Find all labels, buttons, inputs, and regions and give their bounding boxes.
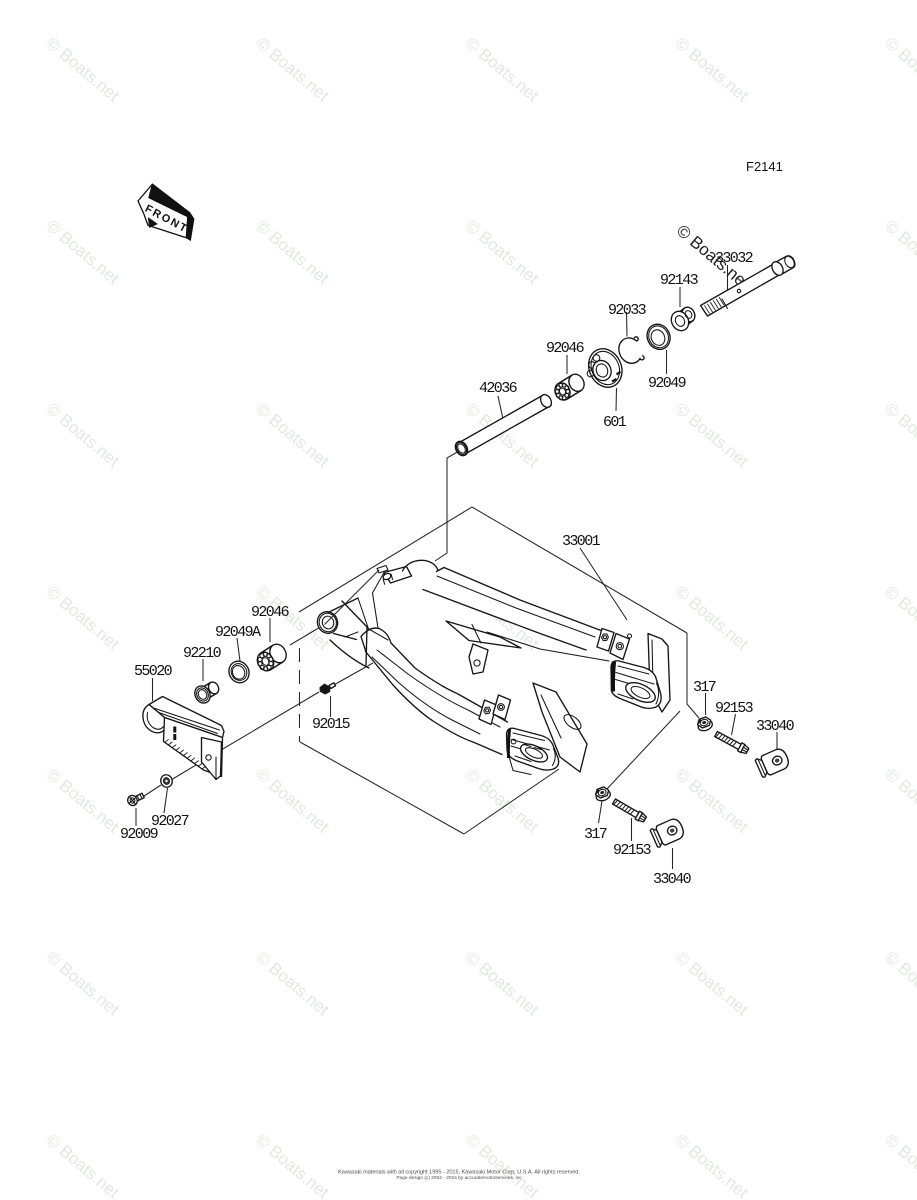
svg-text:92049A: 92049A xyxy=(215,624,261,641)
svg-text:92009: 92009 xyxy=(120,826,158,843)
svg-text:F2141: F2141 xyxy=(746,159,783,174)
svg-text:Kawasaki materials with all co: Kawasaki materials with all copyright 19… xyxy=(338,1170,580,1176)
svg-text:92049: 92049 xyxy=(648,375,686,392)
svg-text:55020: 55020 xyxy=(134,663,173,680)
svg-text:317: 317 xyxy=(693,679,716,696)
svg-text:92046: 92046 xyxy=(251,604,290,621)
svg-text:92153: 92153 xyxy=(715,700,754,717)
svg-text:317: 317 xyxy=(584,826,607,843)
svg-text:Page design (c) 2004 - 2015 by: Page design (c) 2004 - 2015 by accuratem… xyxy=(396,1175,522,1181)
svg-text:92210: 92210 xyxy=(183,645,222,662)
svg-text:92153: 92153 xyxy=(613,842,652,859)
svg-text:33040: 33040 xyxy=(756,718,795,735)
svg-text:92046: 92046 xyxy=(546,340,585,357)
svg-text:33032: 33032 xyxy=(715,250,753,267)
svg-text:601: 601 xyxy=(603,414,627,431)
svg-text:92143: 92143 xyxy=(660,272,699,289)
svg-text:92015: 92015 xyxy=(312,716,351,733)
svg-text:42036: 42036 xyxy=(479,380,518,397)
svg-text:33001: 33001 xyxy=(562,533,601,550)
svg-text:33040: 33040 xyxy=(653,871,692,888)
svg-text:92033: 92033 xyxy=(608,302,647,319)
